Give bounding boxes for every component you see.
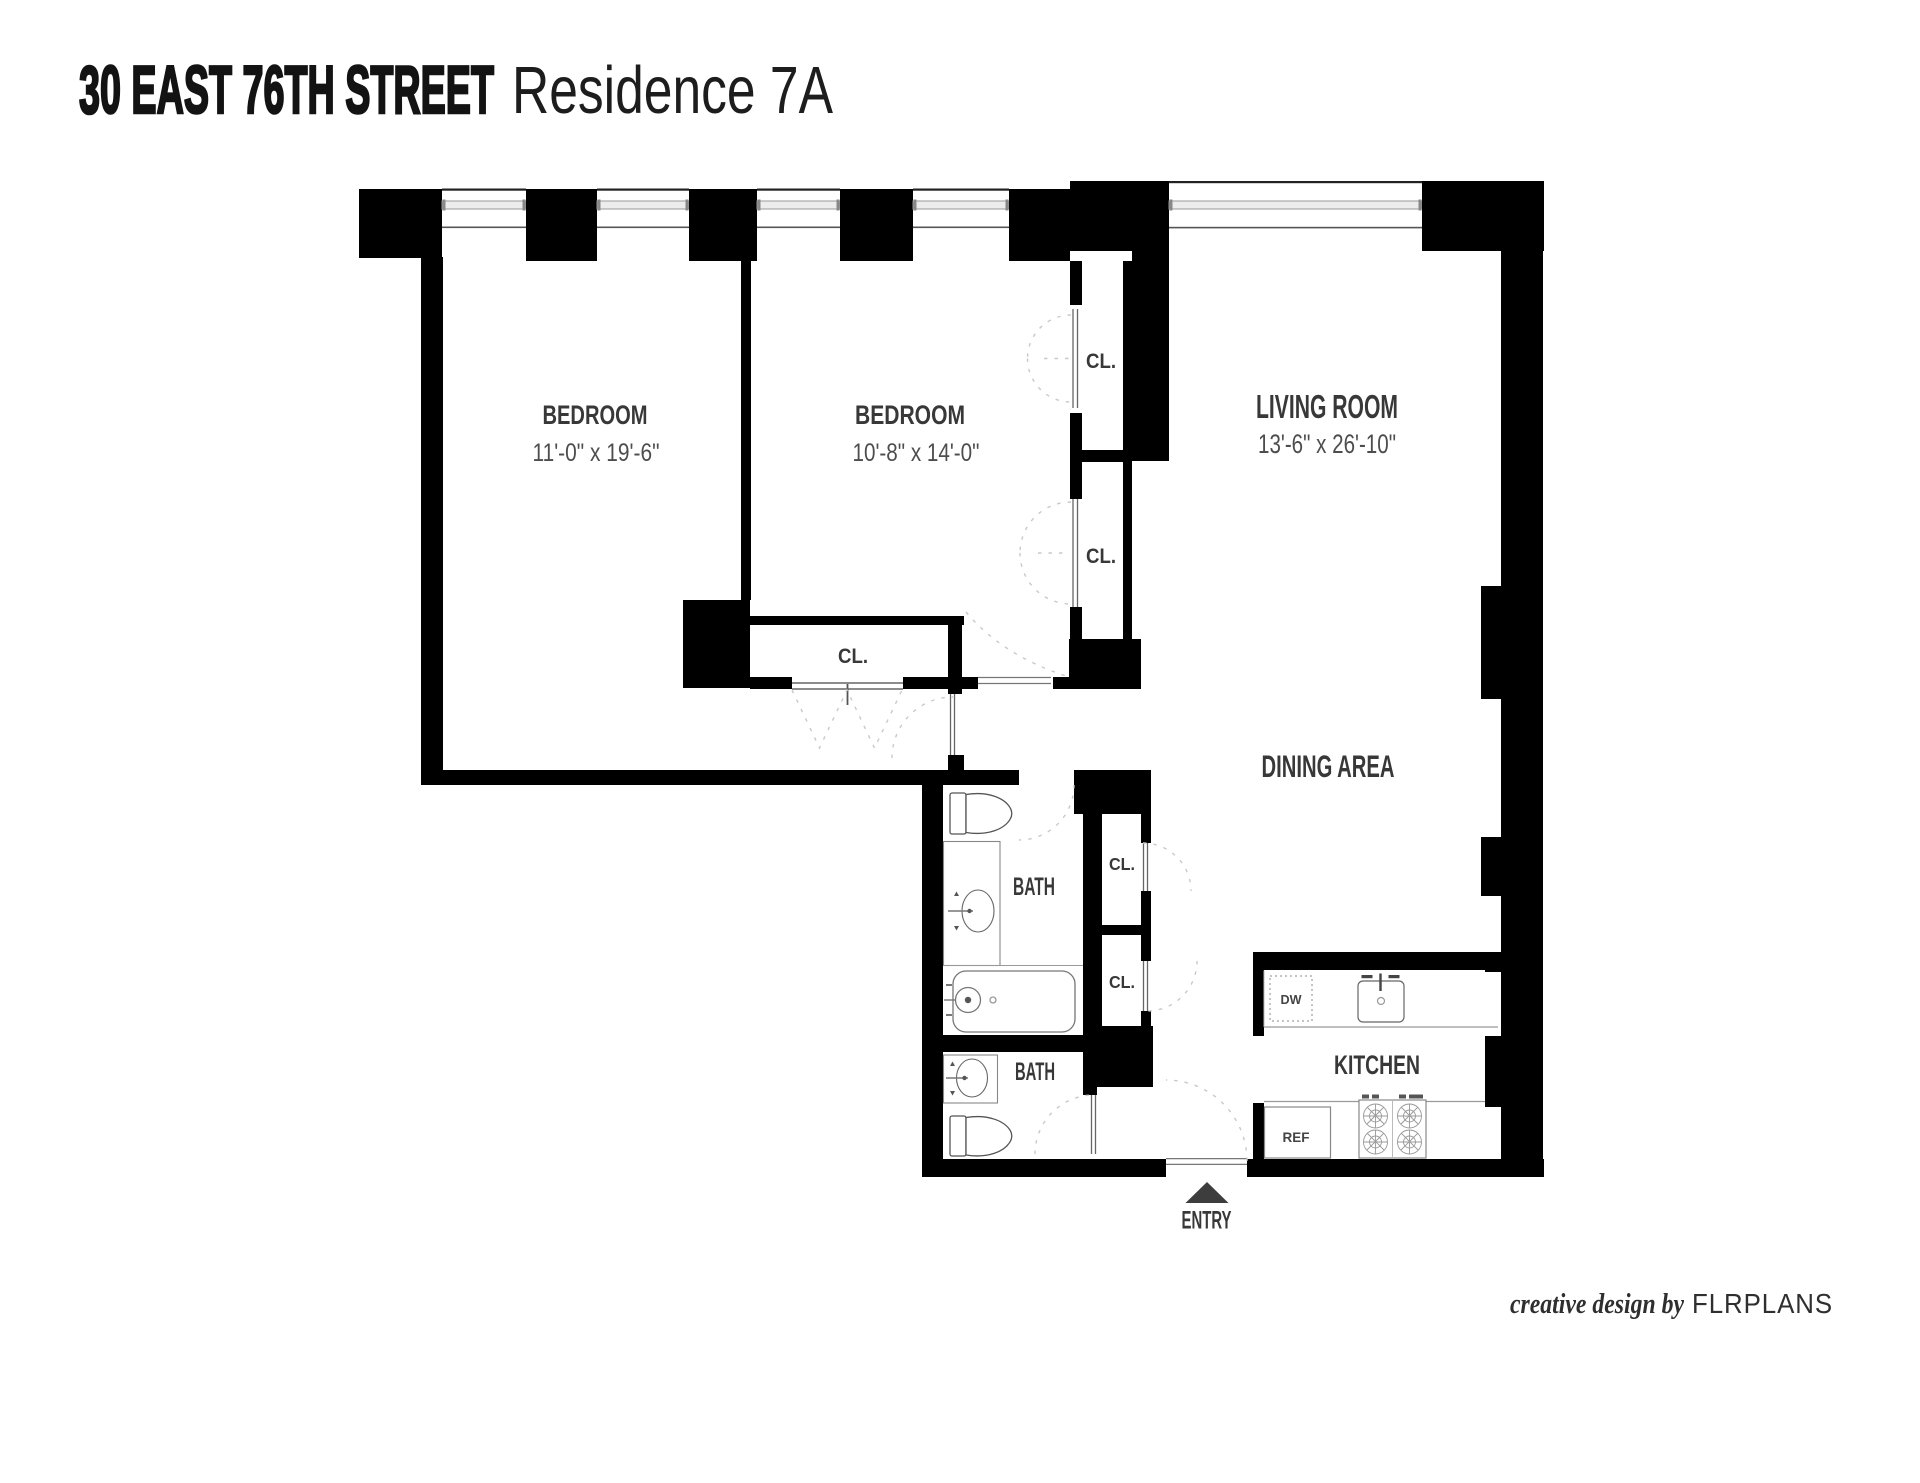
svg-text:CL.: CL. — [1109, 972, 1135, 992]
svg-text:ENTRY: ENTRY — [1182, 1207, 1232, 1235]
svg-text:CL.: CL. — [838, 645, 868, 668]
svg-text:BEDROOM: BEDROOM — [543, 400, 648, 430]
svg-text:LIVING ROOM: LIVING ROOM — [1256, 388, 1398, 425]
svg-text:FLRPLANS: FLRPLANS — [1692, 1288, 1833, 1319]
svg-text:13'-6" x 26'-10": 13'-6" x 26'-10" — [1258, 429, 1396, 459]
svg-text:REF: REF — [1283, 1129, 1310, 1145]
svg-text:BATH: BATH — [1015, 1058, 1055, 1086]
svg-text:DW: DW — [1281, 993, 1302, 1007]
svg-text:CL.: CL. — [1086, 350, 1116, 373]
svg-text:BATH: BATH — [1013, 873, 1055, 901]
svg-text:BEDROOM: BEDROOM — [855, 400, 965, 430]
svg-text:KITCHEN: KITCHEN — [1334, 1050, 1420, 1080]
svg-text:Residence 7A: Residence 7A — [512, 53, 833, 128]
svg-text:30 EAST 76TH STREET: 30 EAST 76TH STREET — [79, 52, 494, 128]
svg-text:creative design by: creative design by — [1510, 1289, 1684, 1320]
svg-text:CL.: CL. — [1086, 545, 1116, 568]
svg-text:DINING AREA: DINING AREA — [1262, 748, 1395, 784]
svg-text:CL.: CL. — [1109, 854, 1135, 874]
svg-text:10'-8" x 14'-0": 10'-8" x 14'-0" — [853, 439, 980, 467]
svg-text:11'-0" x 19'-6": 11'-0" x 19'-6" — [533, 439, 660, 467]
